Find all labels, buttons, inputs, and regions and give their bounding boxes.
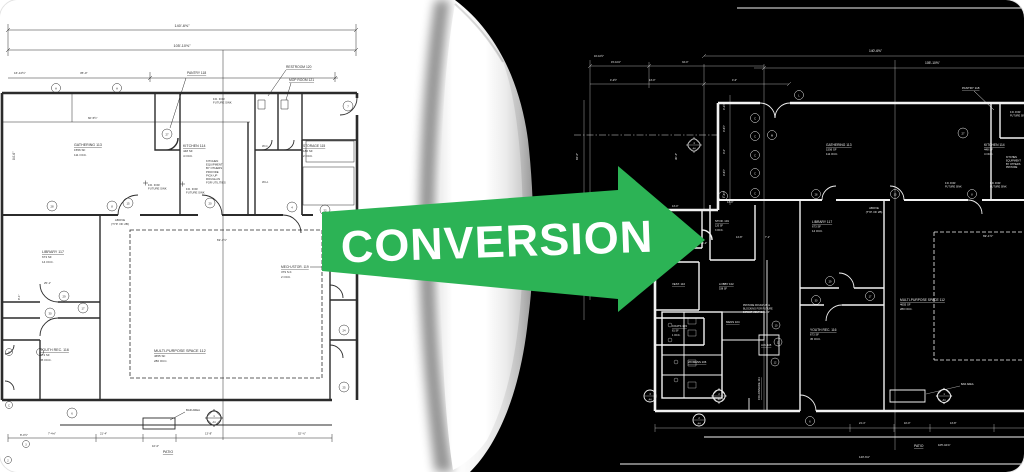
room-occupancy: 4 OCC. [183, 154, 193, 158]
svg-text:1: 1 [213, 414, 215, 418]
svg-text:DIRECT VENT GAS FP: DIRECT VENT GAS FP [743, 311, 770, 314]
svg-text:8: 8 [971, 194, 973, 197]
conversion-arrow-label: CONVERSION [340, 211, 654, 273]
room-label-kitchen: KITCHEN 114 [183, 144, 206, 148]
room-label-colonnade: COLONNADE 111 [757, 377, 761, 400]
section-marker: 1A4 [936, 388, 952, 404]
svg-text:30: 30 [48, 312, 52, 316]
room-occupancy: 1 OCC. [672, 334, 681, 337]
svg-text:8: 8 [111, 205, 113, 209]
dim-label: 105'-10⅝" [938, 443, 951, 447]
room-area: 673 SF [810, 333, 819, 337]
room-occupancy: 280 OCC. [900, 307, 913, 311]
svg-text:FUTURE SINK: FUTURE SINK [186, 191, 205, 195]
dim-label: 8'-0½" [20, 433, 28, 437]
svg-text:3: 3 [649, 393, 651, 396]
dim-label: 13'-0" [727, 201, 733, 204]
room-area: 673 SF [42, 255, 52, 259]
svg-text:M: M [771, 135, 773, 138]
patio-area: PATIO 7'-4⅝" 21'-4" 10'-0" 13'-8" 52'-½"… [8, 400, 332, 454]
svg-text:15: 15 [894, 194, 897, 197]
svg-text:A4: A4 [717, 399, 721, 402]
room-label-moproom: MOP ROOM 121 [289, 78, 314, 82]
svg-text:PROVIDE: PROVIDE [1006, 166, 1018, 169]
svg-text:2: 2 [718, 393, 720, 396]
grid-bubble: C [8, 351, 10, 354]
dim-label: 140'-6⅝" [859, 455, 870, 459]
svg-text:(TYP. OF 2B): (TYP. OF 2B) [866, 210, 883, 214]
svg-text:25: 25 [342, 386, 346, 390]
dim-label: 10'-0" [904, 422, 910, 425]
dim-label: 69'-1½" [217, 238, 227, 242]
svg-text:FUTURE SINK: FUTURE SINK [213, 101, 232, 105]
dim-label: 84'-6" [12, 151, 16, 160]
svg-text:15: 15 [126, 202, 130, 206]
room-label-multi-purpose: MULTI-PURPOSE SPACE 112 [900, 298, 945, 302]
section-marker: 2A4 [712, 389, 727, 404]
door-bubble: 27 [961, 132, 965, 136]
room-label-pantry: PANTRY 118 [187, 71, 206, 75]
svg-text:FOR UTILITIES: FOR UTILITIES [206, 181, 226, 185]
room-area: 379 S.F. [281, 270, 292, 274]
svg-text:30: 30 [815, 300, 818, 303]
conversion-arrow: CONVERSION [300, 150, 720, 330]
room-occupancy: 280 OCC. [154, 359, 168, 363]
room-area: 4655 SF [154, 354, 166, 358]
room-occupancy: 2 OCC. [281, 275, 291, 279]
svg-text:27: 27 [165, 133, 169, 137]
bar-area-label: BAR AREA [961, 383, 974, 386]
room-occupancy: 45 OCC. [40, 358, 52, 362]
room-occupancy: 14 OCC. [812, 229, 823, 233]
svg-text:4: 4 [291, 206, 293, 210]
room-label-multi-purpose: MULTI-PURPOSE SPACE 112 [154, 349, 206, 353]
svg-text:28: 28 [50, 205, 54, 209]
svg-text:2: 2 [698, 417, 700, 420]
svg-text:(TYP. OF 2B): (TYP. OF 2B) [111, 222, 129, 226]
dim-label: 15'-10⅝" [611, 61, 621, 64]
svg-text:FUTURE SINK: FUTURE SINK [945, 185, 962, 188]
svg-text:29: 29 [62, 295, 66, 299]
dim-label: 21'-4" [859, 422, 865, 425]
dim-label: 34'-0" [682, 61, 688, 64]
grid-bubble: A [55, 87, 57, 91]
door-bubble: 12 [774, 362, 777, 365]
dim-label: 14'-8" [736, 236, 742, 239]
svg-text:C: C [754, 136, 756, 139]
room-label-storage: STORAGE 115 [303, 144, 325, 148]
dim-label: 13'-8" [950, 422, 956, 425]
svg-text:A4: A4 [942, 399, 946, 402]
dim-label: 105'-10⅝" [173, 44, 191, 48]
room-label-pantry: PANTRY 118 [962, 86, 980, 90]
svg-text:A4: A4 [212, 421, 216, 424]
room-gathering: GATHERING 113 1556 SF 111 OCC. [74, 143, 102, 157]
room-area: 1556 SF [74, 148, 86, 152]
dim-label: 52'-½" [298, 432, 306, 436]
svg-text:FUTURE SINK: FUTURE SINK [1010, 114, 1024, 117]
dim-label: 21'-4" [100, 432, 107, 436]
dim-label: 4'-6½" [722, 169, 726, 176]
grid-bubble: C [8, 404, 10, 407]
gas-fireplace-note: PROVIDE ROUGH-IN & BLOCKING FOR FUTURE D… [743, 304, 773, 314]
grid-bubble: A [116, 87, 118, 91]
dim-label: 16'-10½" [14, 71, 26, 75]
room-occupancy: 111 OCC. [74, 153, 87, 157]
dim-label: 25'-1" [44, 281, 51, 285]
svg-text:L: L [798, 95, 800, 98]
dim-label: 140'-6⅝" [175, 24, 191, 28]
svg-text:7: 7 [347, 105, 349, 109]
dim-label: 10'-0" [152, 444, 159, 448]
room-label-wc: W.C. [262, 144, 269, 148]
patio-area: PATIO 21'-4" 10'-0" 13'-8" 105'-10⅝" 140… [644, 383, 1024, 459]
room-area: 448 SF [183, 149, 193, 153]
patio-label: PATIO [163, 450, 173, 454]
dim-label: 4'-0" [732, 79, 737, 82]
dim-label: 7'-1" [765, 236, 770, 239]
room-label-youth-rec: YOUTH REC. 116 [40, 348, 69, 352]
room-label-gathering: GATHERING 113 [74, 143, 102, 147]
room-area: 4655 SF [900, 303, 911, 307]
room-label-mens: MENS 104 [726, 320, 740, 324]
svg-text:17: 17 [81, 307, 85, 311]
dim-label: 13'-0" [649, 79, 655, 82]
room-label-youth-rec: YOUTH REC. 116 [810, 328, 837, 332]
dim-label: 4'-6½" [722, 125, 726, 132]
svg-text:C: C [754, 118, 756, 121]
svg-text:A4: A4 [697, 423, 701, 426]
section-marker: 1 A4 [206, 410, 223, 427]
svg-text:1: 1 [943, 393, 945, 396]
conversion-graphic-canvas: 140'-6⅝" 105'-10⅝" 16'-10½" 35'-0" 84'-6… [0, 0, 1024, 472]
section-marker: 3A4 [644, 390, 656, 402]
svg-text:4: 4 [693, 142, 695, 145]
room-label-gathering: GATHERING 113 [826, 143, 852, 147]
room-occupancy: 4 OCC. [984, 152, 994, 156]
dim-label: 105'-10⅝" [925, 61, 941, 65]
above-note: ABOVE (TYP. OF 2B) [111, 218, 129, 226]
room-label-library: LIBRARY 117 [42, 250, 64, 254]
room-youth-rec: YOUTH REC. 116 673 SF 45 OCC. [2, 318, 100, 400]
dim-label: 35'-0" [80, 71, 88, 75]
room-multi-purpose: MULTI-PURPOSE SPACE 112 4655 SF 280 OCC. [895, 60, 1024, 450]
dim-label: 69'-1½" [983, 234, 993, 238]
svg-text:FUTURE SINK: FUTURE SINK [148, 187, 167, 191]
svg-text:6: 6 [71, 412, 73, 416]
room-label-wh: W.H. [262, 180, 269, 184]
dim-label: 13'-8" [205, 432, 212, 436]
room-library: LIBRARY 117 673 SF 14 OCC. 25'-1" 8'-1" [2, 215, 100, 318]
svg-text:28: 28 [815, 194, 818, 197]
room-occupancy: 14 OCC. [42, 260, 54, 264]
svg-text:6: 6 [809, 421, 811, 424]
dim-label: 4'-0" [723, 149, 726, 154]
room-multi-purpose: MULTI-PURPOSE SPACE 112 4655 SF 280 OCC.… [130, 230, 322, 378]
bar-area-label: BAR AREA [186, 408, 200, 412]
svg-text:C: C [754, 173, 756, 176]
svg-text:17: 17 [869, 296, 872, 299]
section-marker: 2A4 [693, 414, 705, 426]
dim-label: 60'-5½" [88, 116, 97, 120]
svg-text:20: 20 [208, 202, 212, 206]
kitchen-equipment-note: KITCHEN EQUIPMENT BY OTHERS PROVIDE [1006, 156, 1021, 169]
room-label-lobby: LOBBY 102 [719, 282, 734, 286]
dim-label: 16'-10½" [594, 54, 604, 58]
detail-bubble: 3 [25, 443, 27, 446]
room-occupancy: 111 OCC. [826, 152, 838, 156]
svg-text:C: C [754, 155, 756, 158]
patio-label: PATIO [914, 444, 924, 448]
detail-bubble: 2 [7, 459, 9, 462]
room-area: 448 SF [984, 148, 993, 152]
svg-text:C: C [754, 193, 756, 196]
dim-label: 8'-1" [17, 294, 21, 300]
annex-rooms: C C A 2 3 8'-0½" [2, 340, 44, 464]
room-label-womens: WOMENS 106 [688, 360, 707, 364]
room-kitchen: KITCHEN 114 448 SF 4 OCC. KITCHEN EQUIPM… [143, 93, 248, 215]
svg-text:A4: A4 [648, 399, 652, 402]
above-note: ABOVE (TYP. OF 2B) [866, 206, 883, 214]
room-label-library: LIBRARY 117 [812, 220, 832, 224]
room-label-kitchen: KITCHEN 114 [984, 143, 1005, 147]
room-library: LIBRARY 117 673 SF 14 OCC. [800, 200, 884, 305]
grid-bubble-A-row: A A [52, 84, 122, 93]
dim-label: 4'-2½" [610, 78, 617, 82]
svg-text:29: 29 [829, 281, 832, 284]
room-label-jan: JAN. 105 [761, 344, 772, 347]
room-label-restroom: RESTROOM 120 [286, 65, 312, 69]
svg-text:FUTURE SINK: FUTURE SINK [990, 185, 1007, 188]
dim-label: 7'-4⅝" [48, 432, 56, 436]
door-bubble: 10 [775, 325, 778, 328]
room-gathering: GATHERING 113 1556 SF 111 OCC. [826, 143, 852, 156]
room-occupancy: 45 OCC. [810, 337, 821, 341]
room-area: 538 SF [719, 287, 728, 290]
room-area: 1556 SF [826, 148, 837, 152]
room-area: 673 SF [812, 225, 821, 229]
dim-label: 140'-6⅝" [869, 49, 883, 53]
